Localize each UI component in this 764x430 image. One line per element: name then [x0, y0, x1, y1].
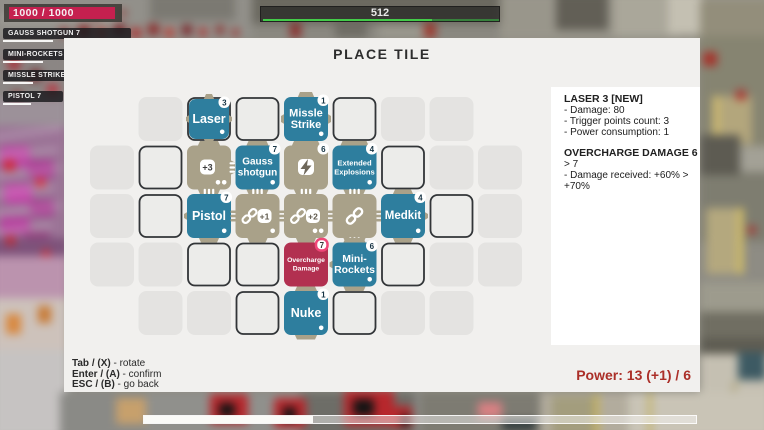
- svg-text:Gauss: Gauss: [242, 157, 273, 168]
- svg-text:Extended: Extended: [337, 159, 372, 168]
- svg-text:+2: +2: [308, 212, 318, 222]
- svg-text:7: 7: [224, 193, 229, 202]
- svg-text:Laser: Laser: [192, 112, 225, 126]
- svg-text:Missle: Missle: [289, 107, 323, 119]
- svg-text:Damage: Damage: [293, 265, 320, 272]
- svg-text:Nuke: Nuke: [291, 306, 322, 320]
- svg-text:6: 6: [370, 242, 375, 251]
- svg-text:4: 4: [418, 193, 423, 202]
- svg-text:7: 7: [320, 241, 325, 250]
- svg-text:1: 1: [321, 96, 326, 105]
- svg-text:shotgun: shotgun: [238, 168, 277, 179]
- svg-text:Explosions: Explosions: [334, 168, 375, 177]
- svg-text:Medkit: Medkit: [385, 210, 422, 222]
- svg-text:Rockets: Rockets: [334, 264, 375, 276]
- svg-text:Strike: Strike: [291, 119, 322, 131]
- svg-text:7: 7: [273, 145, 278, 154]
- svg-text:4: 4: [370, 145, 375, 154]
- svg-text:1: 1: [321, 290, 326, 299]
- svg-text:Pistol: Pistol: [192, 209, 226, 223]
- svg-text:3: 3: [222, 98, 227, 107]
- svg-text:6: 6: [321, 145, 326, 154]
- svg-text:Overcharge: Overcharge: [287, 257, 325, 264]
- svg-text:+3: +3: [202, 163, 212, 173]
- svg-text:+1: +1: [260, 212, 270, 222]
